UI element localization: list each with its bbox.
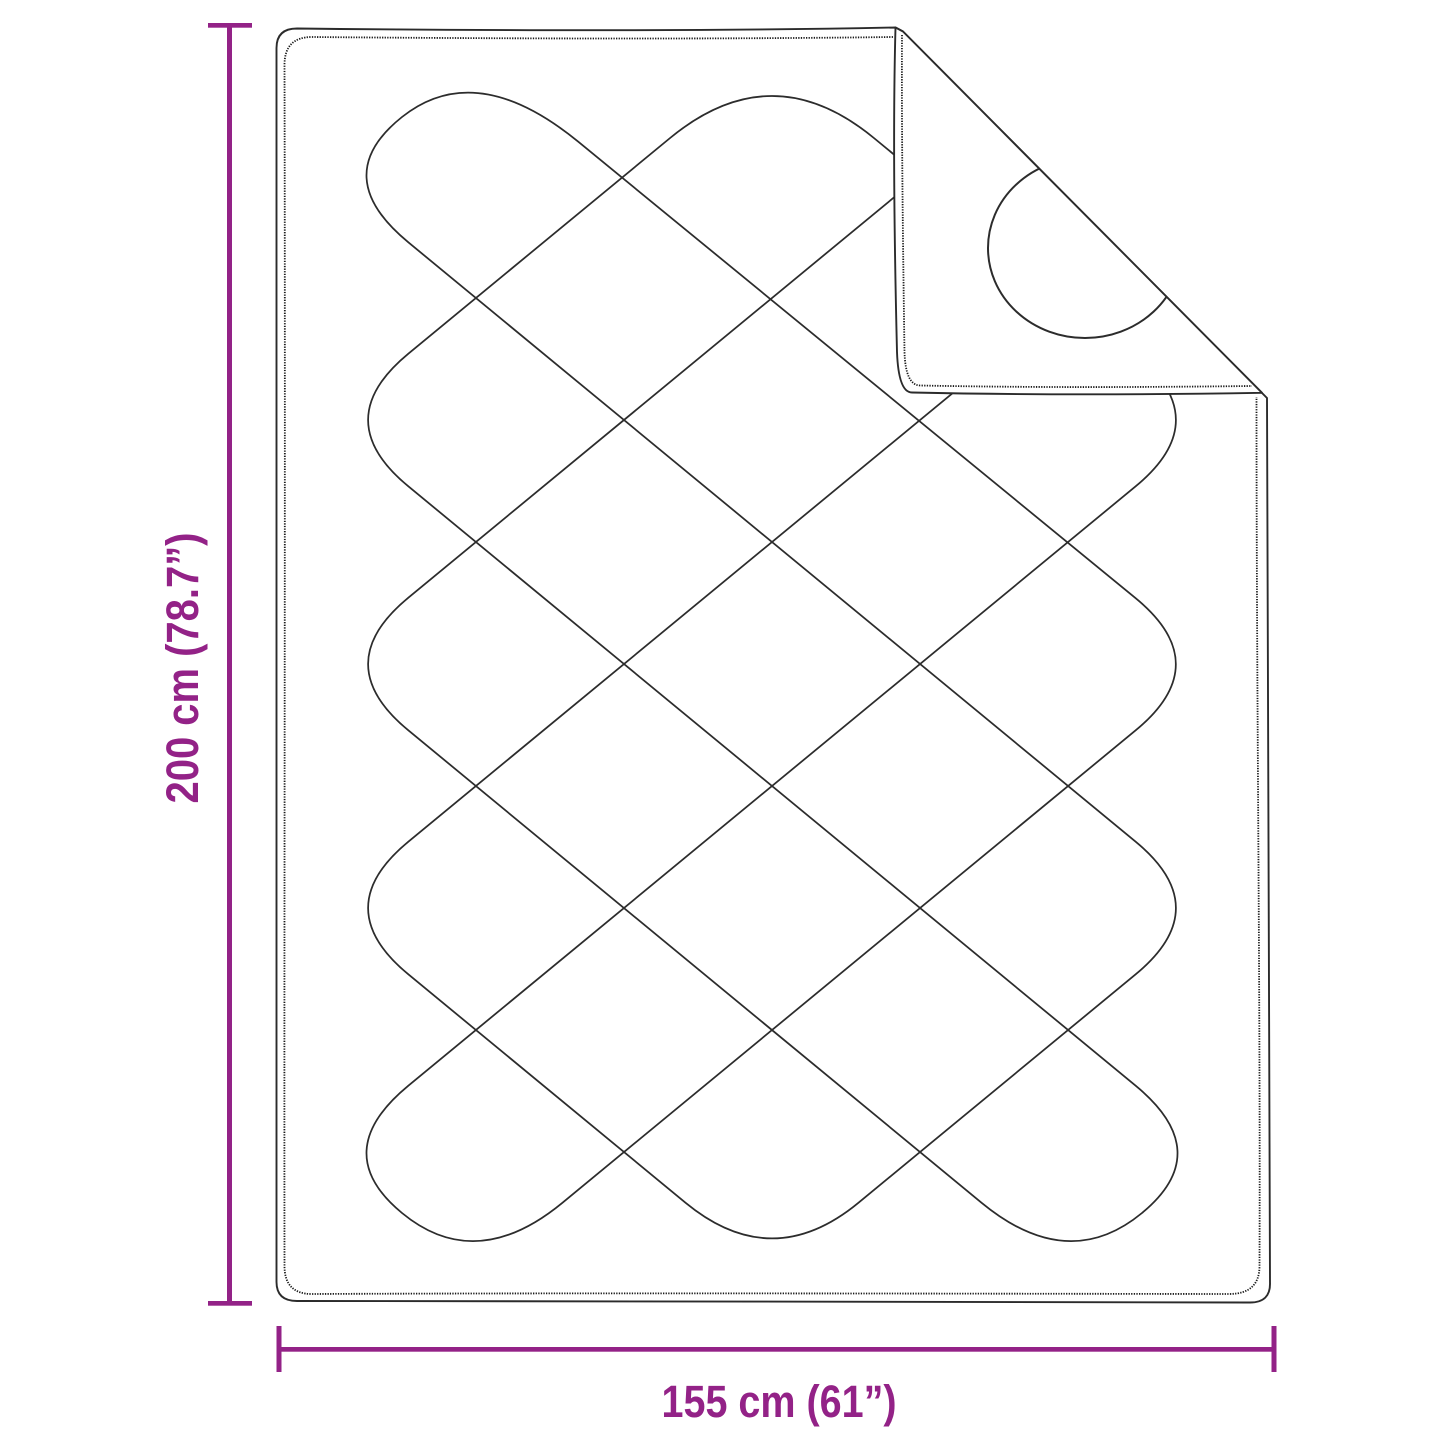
svg-text:155 cm (61”): 155 cm (61”) <box>662 1376 897 1427</box>
svg-text:200 cm (78.7”): 200 cm (78.7”) <box>157 533 208 804</box>
